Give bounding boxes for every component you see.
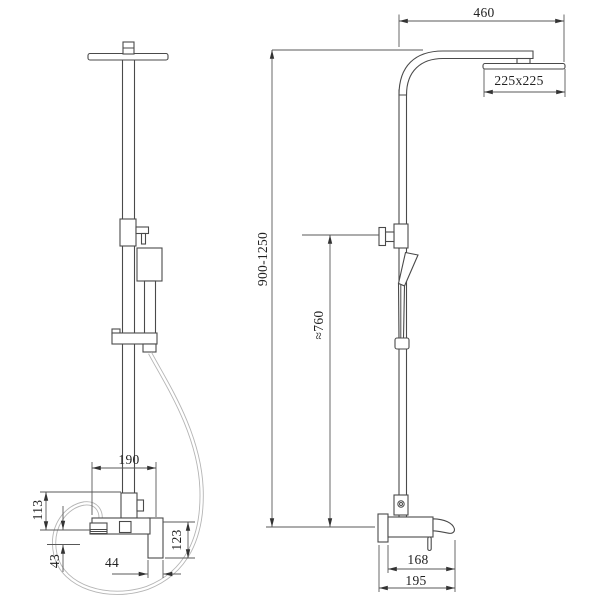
side-lever-handle bbox=[428, 537, 431, 551]
dim-label-total-reach: 195 bbox=[398, 574, 434, 588]
side-slider-knob bbox=[379, 228, 394, 246]
front-cartridge-square bbox=[120, 522, 132, 533]
dim-label-hand-shower-height: ≈760 bbox=[312, 302, 326, 348]
front-slider-knob bbox=[136, 227, 149, 244]
front-head-connector bbox=[123, 42, 134, 54]
side-hand-shower-handle bbox=[399, 284, 405, 339]
side-valve-body bbox=[388, 517, 433, 537]
dim-label-spout-width-front: 44 bbox=[97, 556, 127, 570]
front-hose-fitting bbox=[90, 523, 107, 534]
side-shower-head bbox=[483, 64, 565, 70]
front-view bbox=[54, 42, 202, 593]
front-slider-block bbox=[120, 219, 136, 246]
technical-drawing: 460 225x225 900-1250 ≈760 190 113 43 44 … bbox=[0, 0, 606, 600]
dim-label-mixer-lower-offset: 43 bbox=[48, 548, 62, 574]
front-lower-connector bbox=[121, 493, 144, 518]
drawing-linework bbox=[0, 0, 606, 600]
front-hand-shower-head bbox=[137, 248, 162, 281]
dim-label-arm-reach: 460 bbox=[462, 6, 506, 20]
side-lower-connector bbox=[394, 495, 408, 515]
dim-label-spout-reach: 168 bbox=[400, 553, 436, 567]
dim-label-mixer-width: 190 bbox=[107, 453, 151, 467]
side-pipe-clamp bbox=[395, 338, 409, 349]
side-view bbox=[378, 51, 565, 551]
dim-label-mixer-upper-offset: 113 bbox=[31, 495, 45, 525]
dim-label-head-size: 225x225 bbox=[487, 74, 551, 88]
side-slider-block bbox=[394, 224, 408, 248]
dim-label-spout-drop: 123 bbox=[170, 525, 184, 555]
side-head-connector bbox=[517, 59, 530, 64]
front-hand-shower-handle bbox=[145, 281, 156, 335]
side-spout bbox=[433, 519, 454, 534]
front-mixer-body bbox=[90, 518, 163, 558]
side-wall-flange bbox=[378, 514, 388, 542]
dimension-lines bbox=[40, 15, 565, 593]
dim-label-total-height: 900-1250 bbox=[256, 224, 270, 294]
front-riser-pipe bbox=[123, 58, 135, 518]
